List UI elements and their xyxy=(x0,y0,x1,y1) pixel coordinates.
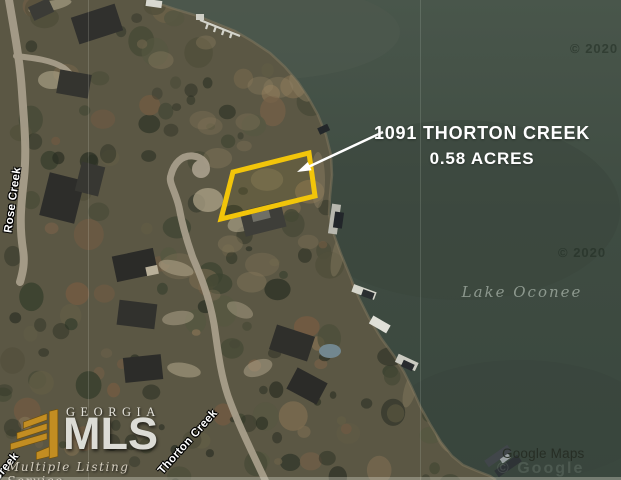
mls-logo-tagline-text: Multiple Listing Service xyxy=(7,460,172,480)
georgia-mls-logo: GEORGIA MLS Multiple Listing Service xyxy=(2,398,172,480)
parcel-address-label: 1091 THORTON CREEK xyxy=(374,123,590,144)
google-copyright-watermark: © Google xyxy=(497,460,584,478)
listing-map-image: 1091 THORTON CREEK 0.58 ACRES Lake Ocone… xyxy=(0,0,621,480)
cul-de-sac xyxy=(192,160,210,178)
parcel-acreage-label: 0.58 ACRES xyxy=(430,149,535,169)
lake-name-label: Lake Oconee xyxy=(462,283,583,301)
mls-logo-name-text: MLS xyxy=(63,411,158,456)
copyright-watermark-middle: © 2020 xyxy=(558,245,606,260)
mls-logo-house-icon xyxy=(4,409,60,461)
copyright-watermark-top: © 2020 xyxy=(570,41,618,56)
google-maps-attribution: Google Maps xyxy=(502,446,585,461)
